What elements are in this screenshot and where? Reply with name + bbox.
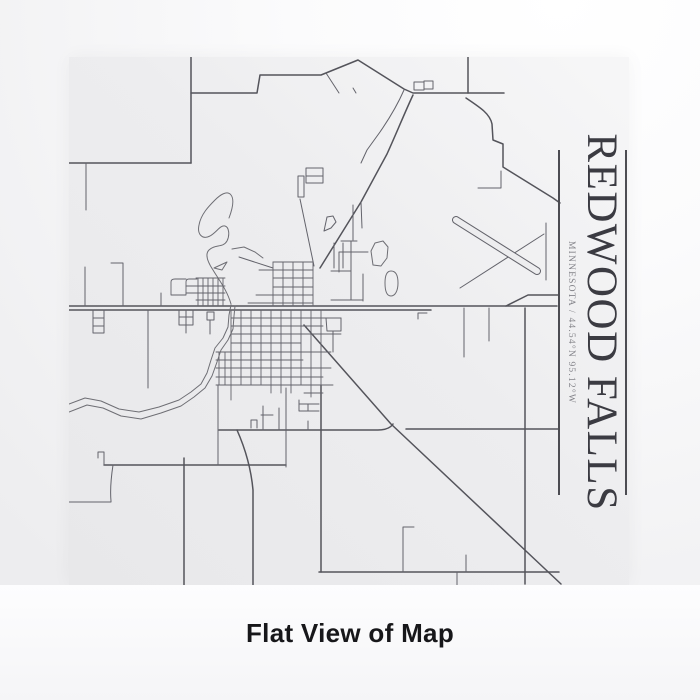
map-subtitle: MINNESOTA / 44.54°N 95.12°W <box>565 241 576 404</box>
map-title-block: REDWOOD FALLS MINNESOTA / 44.54°N 95.12°… <box>558 128 627 517</box>
map-title: REDWOOD FALLS <box>579 133 623 511</box>
title-rule-top <box>626 150 628 495</box>
airport-runway <box>456 220 537 271</box>
map-paper <box>69 57 629 585</box>
major-roads <box>69 57 561 585</box>
title-rule-bottom <box>558 150 560 495</box>
view-caption: Flat View of Map <box>246 618 454 649</box>
caption-area: Flat View of Map <box>0 585 700 700</box>
street-map-svg <box>69 57 630 585</box>
street-grid <box>171 262 341 400</box>
